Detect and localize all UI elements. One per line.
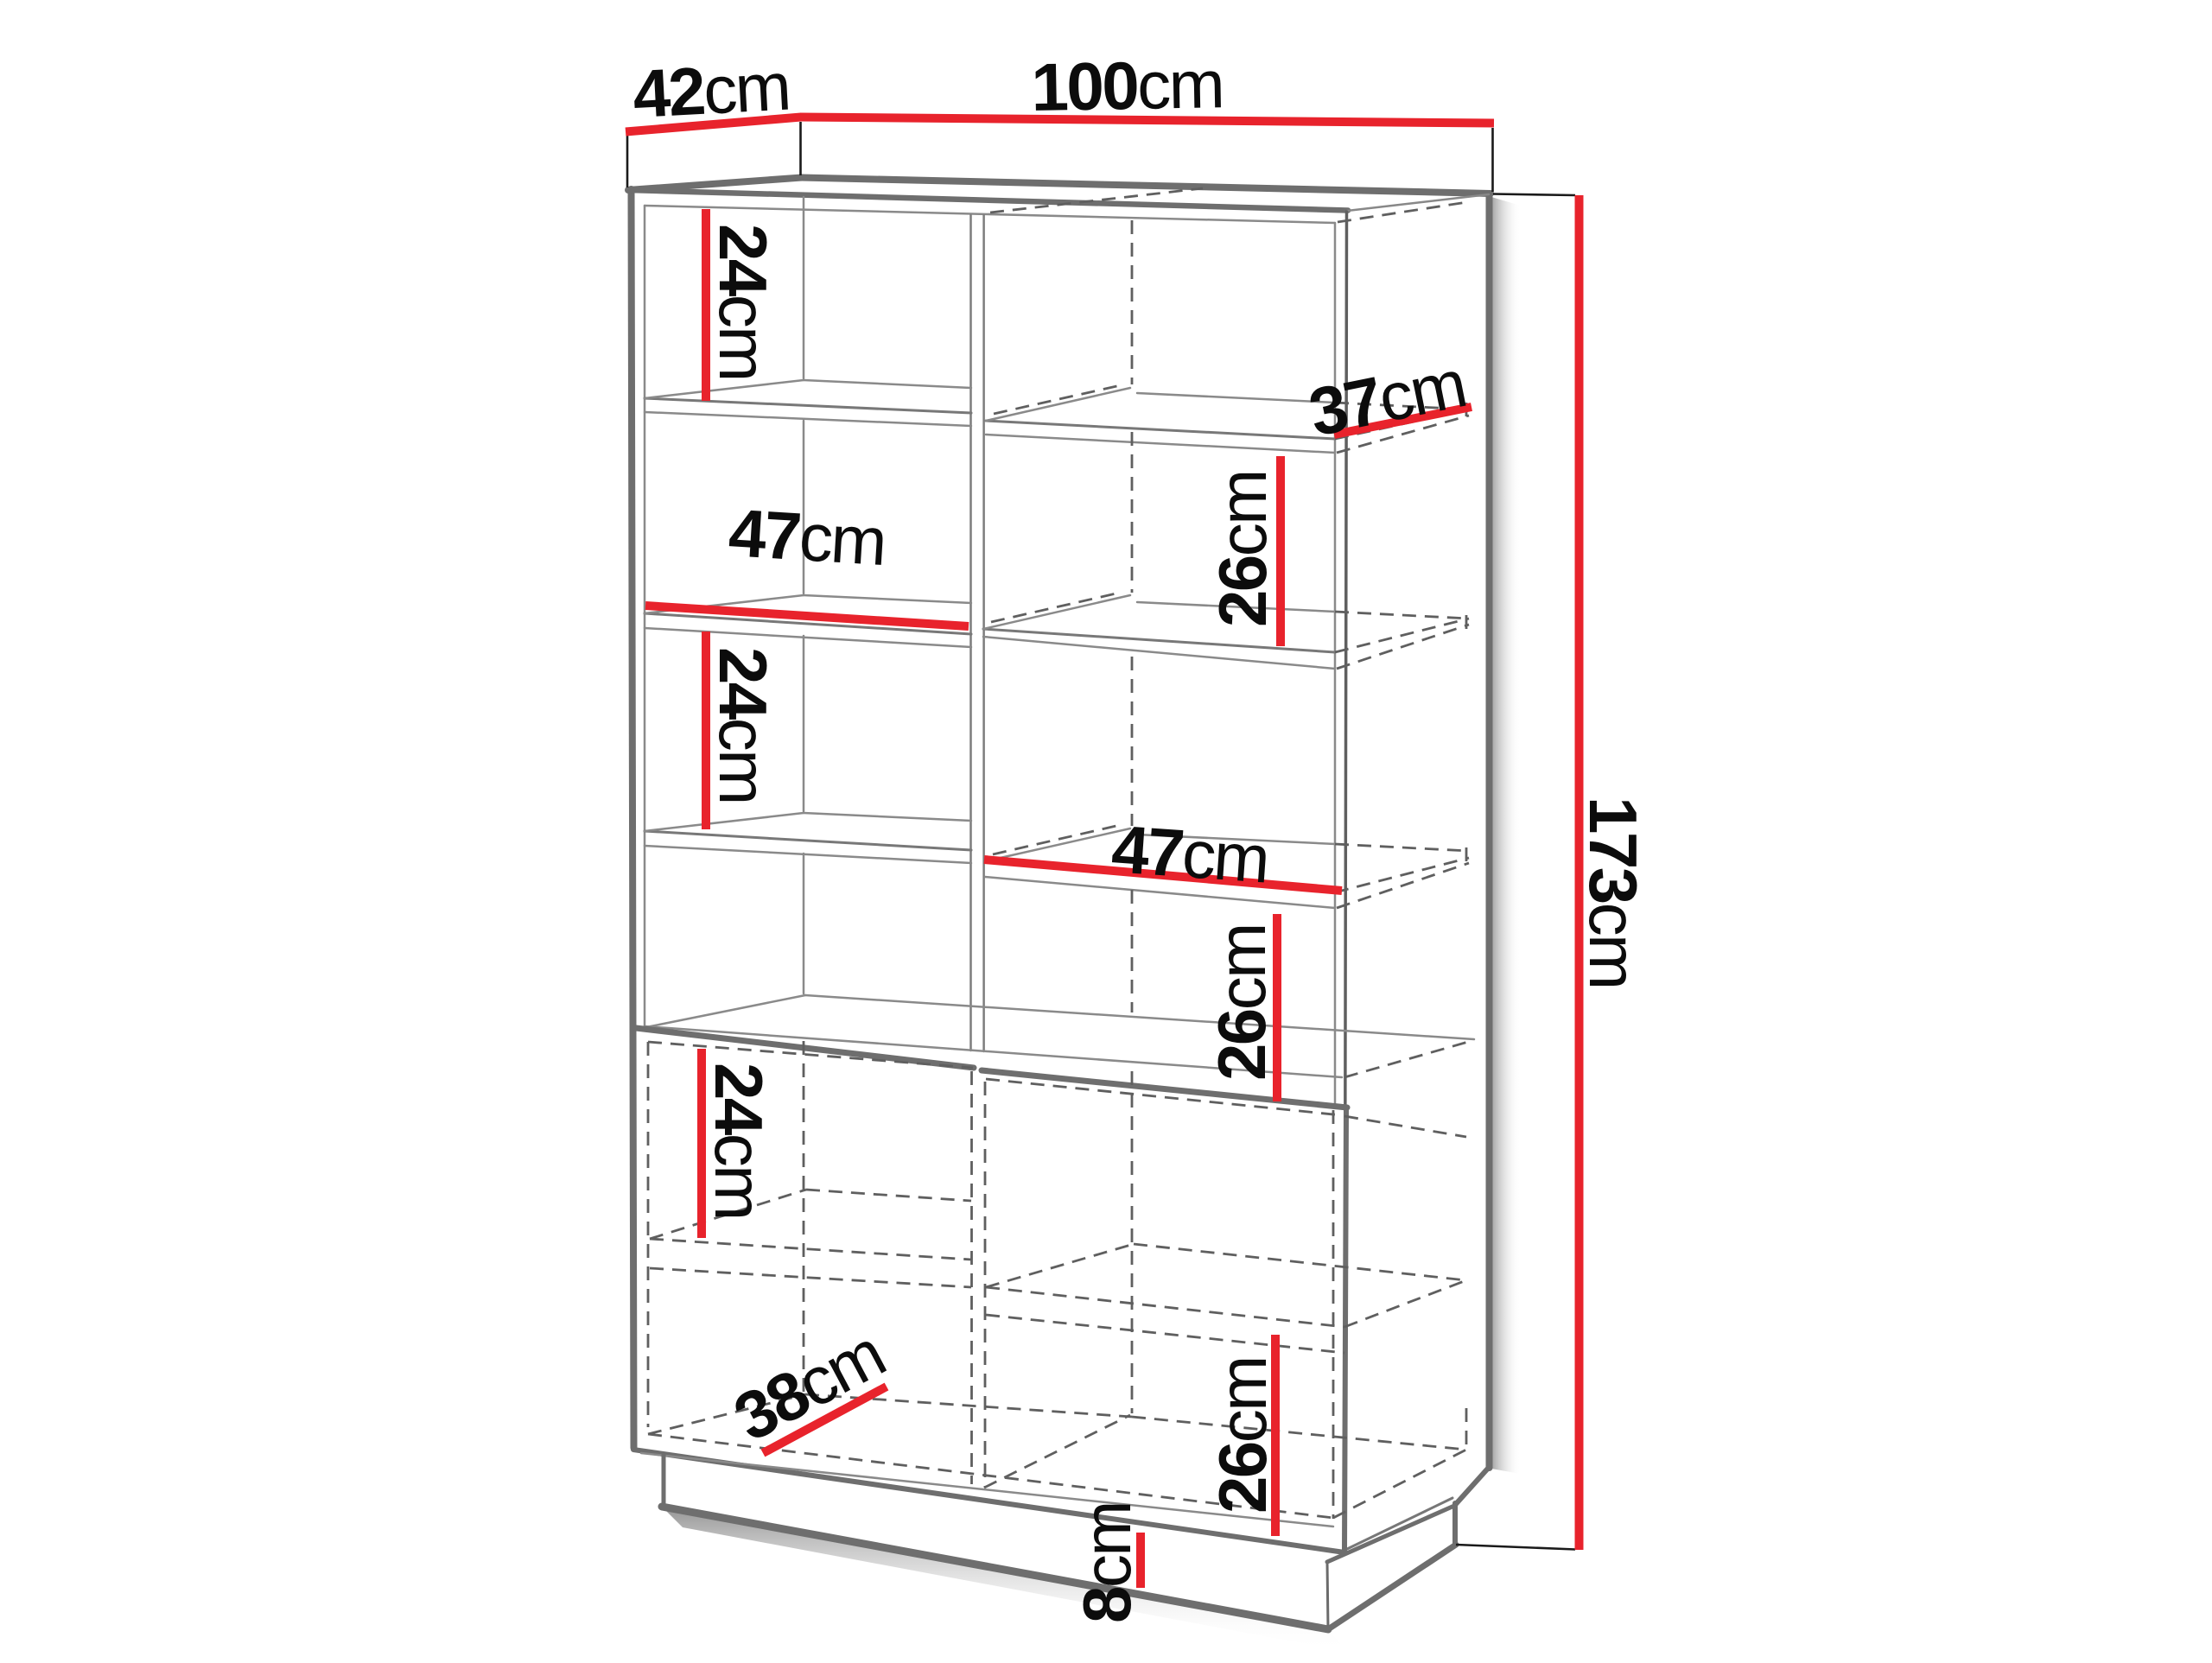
svg-text:26cm: 26cm <box>1204 924 1280 1081</box>
svg-text:26cm: 26cm <box>1205 471 1281 627</box>
svg-text:47cm: 47cm <box>727 494 887 580</box>
svg-text:173cm: 173cm <box>1575 797 1651 988</box>
svg-text:24cm: 24cm <box>705 647 781 803</box>
svg-text:24cm: 24cm <box>701 1063 777 1219</box>
svg-text:42cm: 42cm <box>631 48 791 132</box>
svg-text:100cm: 100cm <box>1031 46 1224 125</box>
svg-text:24cm: 24cm <box>705 224 781 380</box>
svg-text:8cm: 8cm <box>1069 1502 1145 1623</box>
svg-text:26cm: 26cm <box>1205 1357 1281 1514</box>
svg-text:47cm: 47cm <box>1109 810 1270 897</box>
